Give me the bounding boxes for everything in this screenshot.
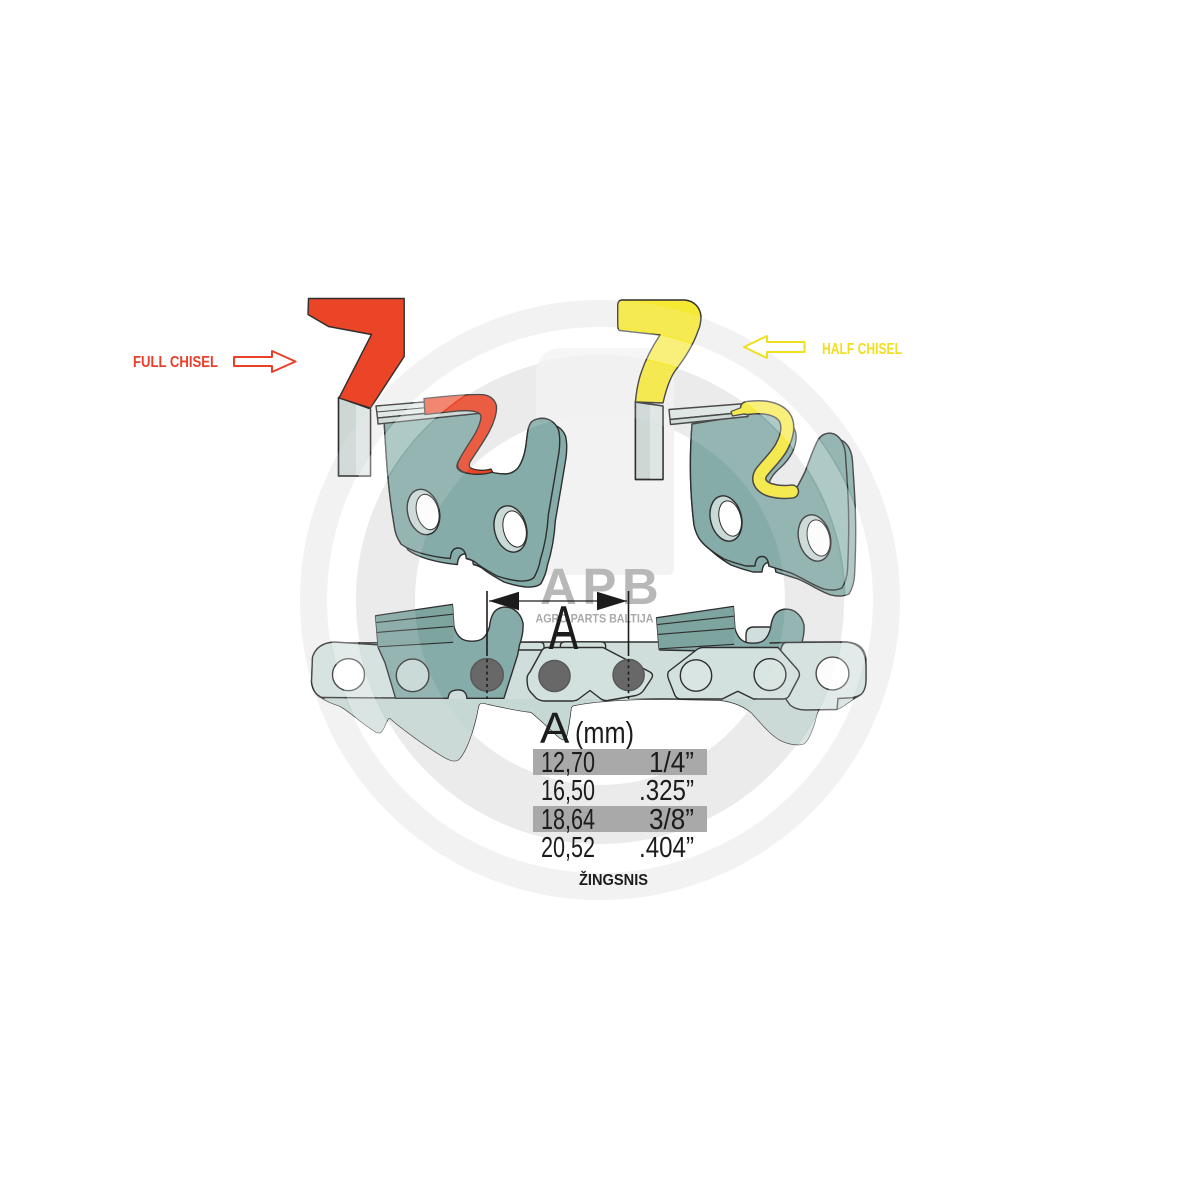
svg-text:A: A <box>540 704 570 753</box>
svg-text:A: A <box>549 594 579 663</box>
svg-text:HALF CHISEL: HALF CHISEL <box>822 341 902 358</box>
svg-text:ŽINGSNIS: ŽINGSNIS <box>579 871 648 889</box>
svg-text:FULL CHISEL: FULL CHISEL <box>133 354 218 371</box>
svg-text:16,50: 16,50 <box>541 775 595 807</box>
svg-text:20,52: 20,52 <box>541 832 595 864</box>
svg-text:.325”: .325” <box>639 775 694 807</box>
svg-text:(mm): (mm) <box>575 715 634 750</box>
svg-text:.404”: .404” <box>639 832 694 864</box>
